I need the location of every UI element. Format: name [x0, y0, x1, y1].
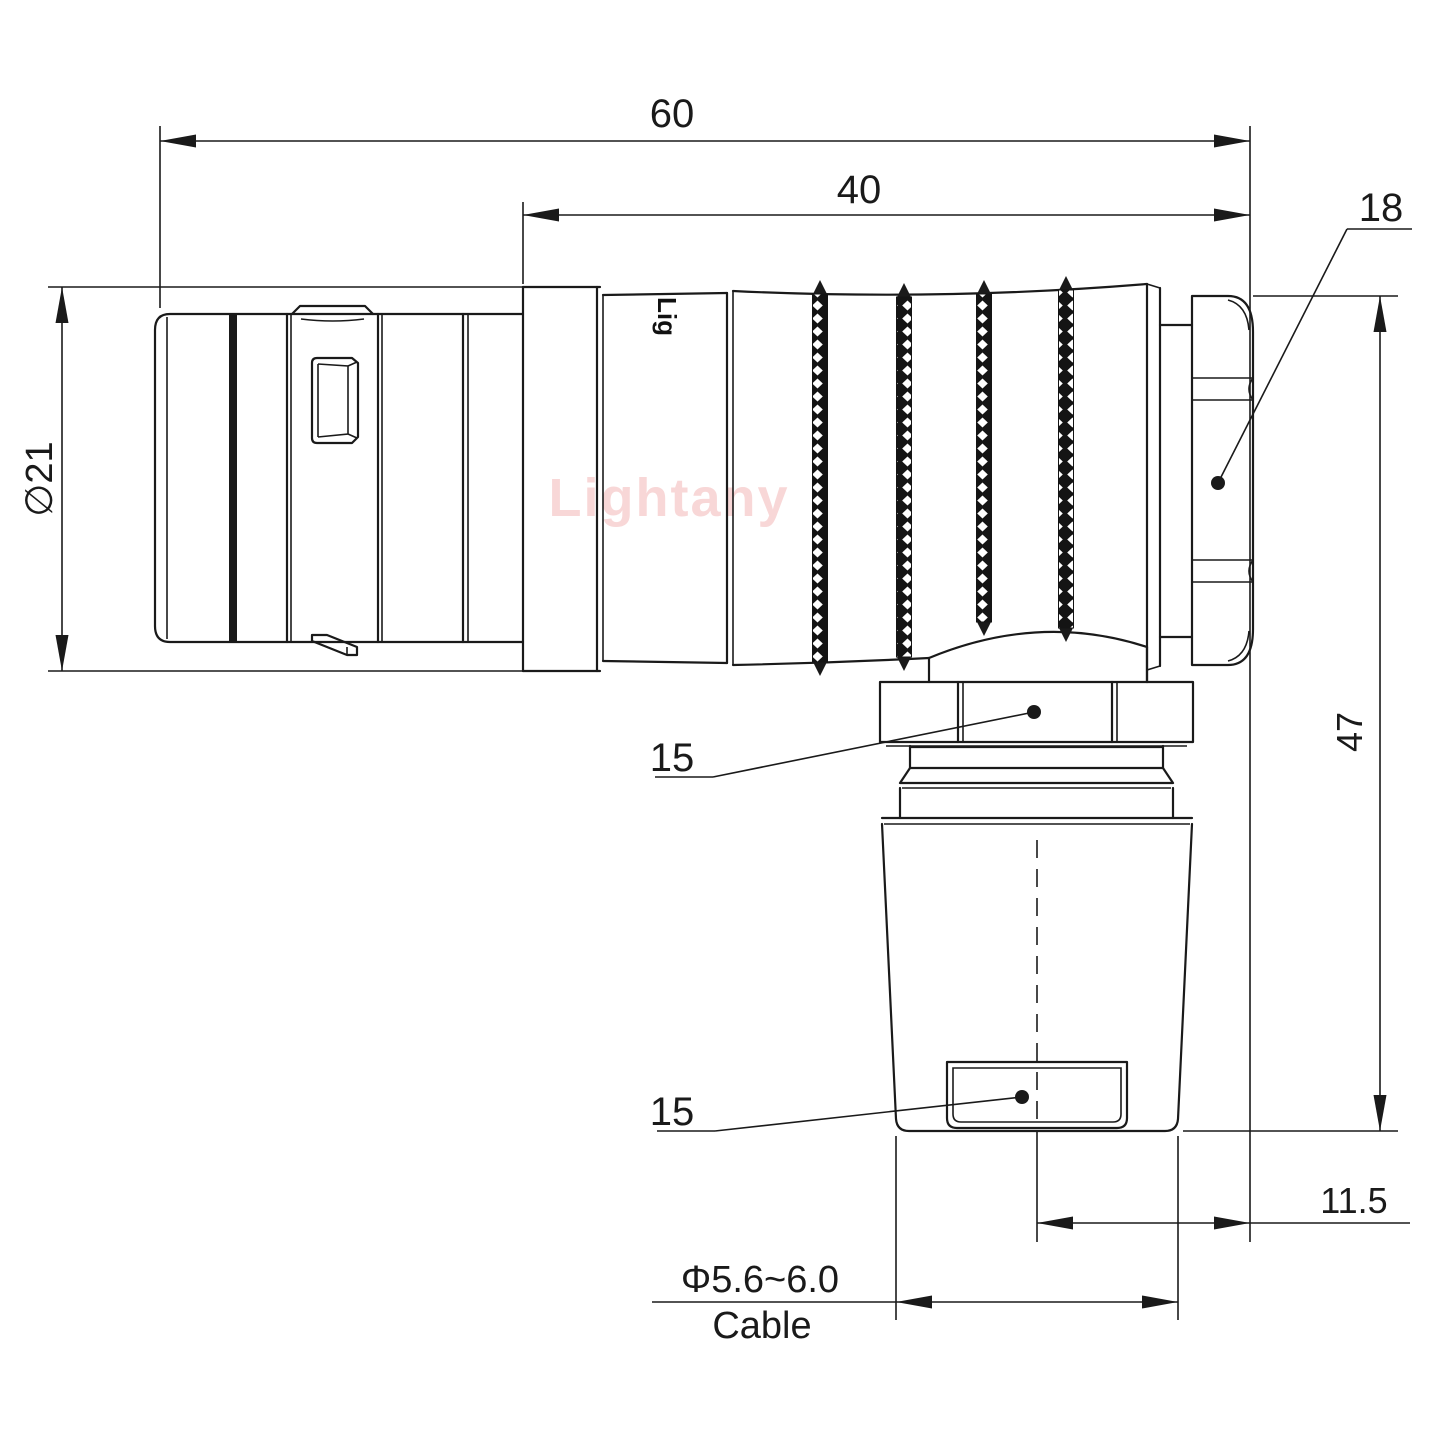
- dimension-40: 40: [523, 168, 1250, 284]
- connector-front-body: [155, 0, 947, 655]
- arrowhead: [56, 287, 69, 323]
- arrowhead: [56, 635, 69, 671]
- knurl-tip: [813, 280, 828, 295]
- grip-top-edge: [733, 284, 1147, 295]
- dim-47-label: 47: [1329, 712, 1370, 752]
- key-bump-arc: [301, 319, 364, 321]
- knurl-bands: [813, 276, 1074, 676]
- dimension-phi21: ∅21: [19, 287, 527, 671]
- knurl-band-2: [897, 297, 912, 657]
- knurl-tip: [813, 661, 828, 676]
- dim-cable-diameter-label: Φ5.6~6.0: [681, 1259, 839, 1301]
- dimension-cable: Φ5.6~6.0 Cable: [652, 1136, 1178, 1347]
- dim-18-label: 18: [1359, 186, 1404, 230]
- elbow-collar-flare: [900, 768, 1173, 783]
- arrowhead: [1374, 296, 1387, 332]
- arrowhead: [896, 1296, 932, 1309]
- leader-line-15b: [715, 1097, 1022, 1131]
- rear-ring-top: [1147, 284, 1160, 288]
- dimension-47: 47: [1183, 296, 1398, 1131]
- watermark-text: Lightany: [549, 468, 790, 528]
- arrowhead: [1214, 1217, 1250, 1230]
- knurl-tip: [1059, 276, 1074, 291]
- barrel-top-edge: [603, 293, 727, 295]
- key-bump: [292, 306, 373, 314]
- knurl-band-3: [977, 294, 992, 622]
- dim-15b-label: 15: [650, 1090, 695, 1134]
- leader-dot-15b: [1015, 1090, 1029, 1104]
- knurl-tip: [977, 280, 992, 295]
- dim-15a-label: 15: [650, 736, 695, 780]
- leader-line-18: [1218, 229, 1347, 483]
- panel-nut-chamfer-arcs: [1228, 300, 1249, 661]
- knurl-tip: [897, 656, 912, 671]
- knurl-tip: [977, 621, 992, 636]
- dim-11.5-label: 11.5: [1320, 1180, 1387, 1221]
- front-black-band: [229, 315, 237, 641]
- arrowhead: [1142, 1296, 1178, 1309]
- leader-dot-18: [1211, 476, 1225, 490]
- elbow-collar-band: [910, 746, 1163, 768]
- dimension-60: 60: [160, 92, 1250, 1242]
- connector-technical-drawing: Lightany: [0, 0, 1440, 1440]
- dimension-18-leader: 18: [1211, 186, 1412, 490]
- arrowhead: [523, 209, 559, 222]
- elbow-lower-body: [880, 647, 1193, 1131]
- knurl-tip: [897, 283, 912, 298]
- knurl-band-4: [1059, 290, 1074, 628]
- rear-ring-bottom: [1147, 666, 1160, 670]
- arrowhead: [1037, 1217, 1073, 1230]
- dim-phi21-label: ∅21: [19, 441, 61, 516]
- keyway-window-depth: [318, 362, 357, 438]
- arrowhead: [1214, 209, 1250, 222]
- arrowhead: [1214, 135, 1250, 148]
- barrel-bottom-edge: [603, 661, 727, 663]
- latch-hook: [312, 635, 357, 655]
- dim-60-label: 60: [650, 92, 695, 136]
- dimension-11.5: 11.5: [1037, 1131, 1410, 1242]
- leader-dot-15a: [1027, 705, 1041, 719]
- drawing-sheet: Lightany: [0, 0, 1440, 1440]
- dim-cable-word-label: Cable: [712, 1305, 811, 1347]
- arrowhead: [1374, 1095, 1387, 1131]
- keyway-window-outer: [312, 358, 358, 443]
- part-marking-text: Lig: [652, 297, 682, 336]
- knurl-band-1: [813, 294, 828, 662]
- knurl-tip: [1059, 627, 1074, 642]
- arrowhead: [160, 135, 196, 148]
- elbow-saddle-curve: [929, 632, 1147, 658]
- dim-40-label: 40: [837, 168, 882, 212]
